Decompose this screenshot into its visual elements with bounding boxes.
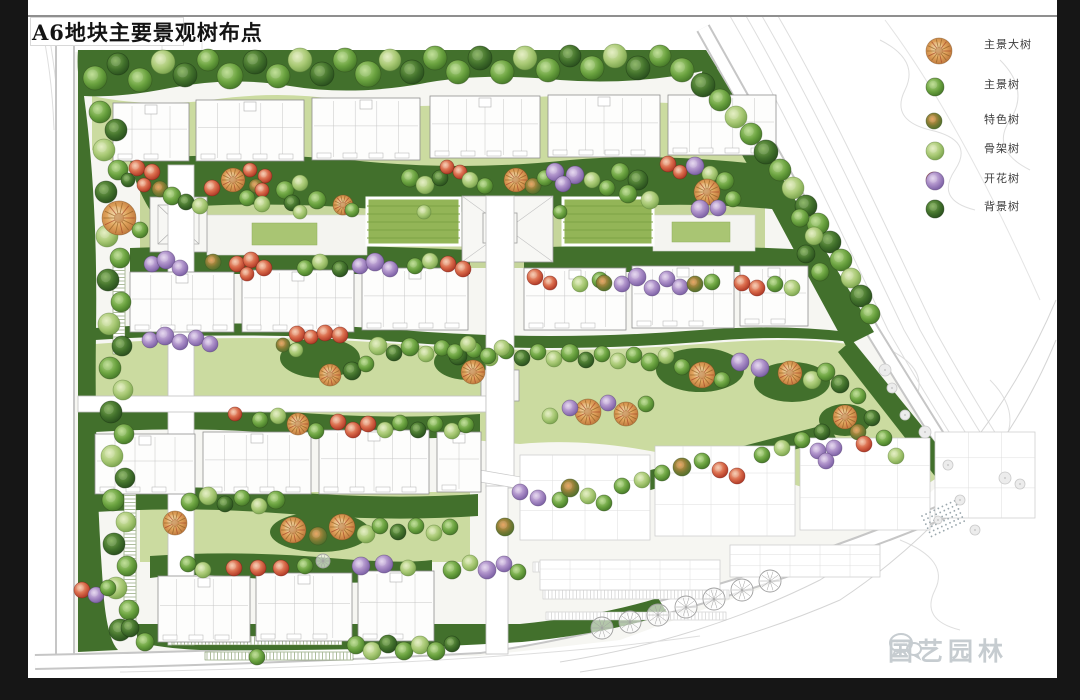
tree-symbol-bg [850,285,872,307]
tree-symbol-bg [831,375,849,393]
tree-symbol-fp [188,330,204,346]
tree-symbol-sk [418,346,434,362]
tree-symbol-mn [926,78,944,96]
tree-symbol-bt [287,413,309,435]
offsite-tree [970,525,980,535]
tree-symbol-mn [442,519,458,535]
tree-symbol-mn [649,45,671,67]
line-tree-symbol [316,554,330,568]
tree-symbol-sp [496,518,514,536]
tree-symbol-bg [103,533,125,555]
tree-symbol-mn [355,61,381,87]
tree-symbol-mn [427,642,445,660]
tree-symbol-mn [725,191,741,207]
tree-symbol-bg [112,336,132,356]
tree-symbol-sk [192,198,208,214]
tree-symbol-bt [778,361,802,385]
offsite-tree [1015,479,1025,489]
legend-tree-swatch-icon [924,111,944,131]
tree-symbol-sk [377,422,393,438]
tree-symbol-mn [114,424,134,444]
tree-symbol-fr [228,407,242,421]
tree-symbol-bt [221,168,245,192]
tree-symbol-bg [332,261,348,277]
legend-item-sk: 骨架树 [924,140,1020,156]
tree-symbol-mn [392,415,408,431]
tree-symbol-bg [864,410,880,426]
legend-label: 主景树 [984,76,1020,92]
tree-symbol-sk [426,525,442,541]
tree-symbol-sk [513,46,537,70]
offsite-tree [879,364,891,376]
tree-symbol-mn [596,495,612,511]
tree-symbol-mn [252,412,268,428]
tree-symbol-fr [304,330,318,344]
tree-symbol-mn [119,600,139,620]
tree-symbol-fp [352,258,368,274]
tree-symbol-fp [818,453,834,469]
tree-symbol-sp [309,527,327,545]
cad-building-outline [730,545,880,577]
legend-label: 开花树 [984,170,1020,186]
line-tree-symbol [703,588,725,610]
legend-item-fr-fp: 开花树 [924,170,1020,186]
tree-symbol-mn [670,58,694,82]
tree-symbol-mn [266,64,290,88]
tree-symbol-bt [102,201,136,235]
tree-symbol-sk [774,440,790,456]
tree-symbol-mn [99,357,121,379]
tree-symbol-sk [292,175,308,191]
tree-symbol-bg [410,422,426,438]
tree-symbol-fr [204,180,220,196]
tree-symbol-sk [926,142,944,160]
tree-symbol-bg [400,60,424,84]
tree-symbol-bg [243,50,267,74]
tree-symbol-bt [504,168,528,192]
tree-symbol-fp [512,484,528,500]
tree-symbol-fr [317,325,333,341]
tree-symbol-fr [74,582,90,598]
tree-symbol-mn [614,478,630,494]
tree-symbol-sk [312,254,328,270]
tree-symbol-mn [530,344,546,360]
tree-symbol-fp [562,400,578,416]
tree-symbol-fr [250,560,266,576]
tree-symbol-mn [553,205,567,219]
legend-label: 骨架树 [984,140,1020,156]
tree-symbol-sk [658,348,674,364]
legend-tree-swatch-icon [924,198,946,220]
building-footprint [203,432,311,494]
parking-hatch-strip [205,652,353,660]
tree-symbol-sk [462,555,478,571]
building-footprint [632,266,734,328]
watermark: 国艺园林 [888,632,1008,668]
tree-symbol-mn [754,447,770,463]
tree-symbol-mn [89,101,111,123]
legend-label: 特色树 [984,111,1020,127]
tree-symbol-sk [101,445,123,467]
left-letterbox [0,0,28,700]
tree-symbol-fp [731,353,749,371]
tree-symbol-bg [814,424,830,440]
tree-symbol-mn [694,453,710,469]
tree-symbol-sk [634,472,650,488]
offsite-tree [919,426,931,438]
tree-symbol-mn [619,185,637,203]
tree-symbol-sk [603,44,627,68]
tree-symbol-sk [725,106,747,128]
tree-symbol-mn [480,348,496,364]
building-footprint [242,270,354,332]
tree-symbol-bg [514,350,530,366]
tree-symbol-sp [687,276,703,292]
tree-symbol-mn [136,633,154,651]
tree-symbol-mn [249,649,265,665]
tree-symbol-fr [543,276,557,290]
line-tree-symbol [675,596,697,618]
right-letterbox [1057,0,1080,700]
tree-symbol-mn [594,346,610,362]
tree-symbol-fp [691,200,709,218]
bottom-letterbox [0,678,1080,700]
cad-building-outline [655,446,795,536]
tree-symbol-sk [195,562,211,578]
tree-symbol-mn [239,190,255,206]
site-plan-drawing [0,0,1080,700]
tree-symbol-mn [408,518,424,534]
tree-symbol-bg [178,194,194,210]
tree-symbol-fr [673,165,687,179]
tree-symbol-mn [654,465,670,481]
tree-symbol-bg [390,524,406,540]
tree-symbol-mn [128,68,152,92]
tree-symbol-sk [580,488,596,504]
tree-symbol-mn [876,430,892,446]
building-footprint [430,96,540,158]
tree-symbol-fr [243,163,257,177]
tree-symbol-mn [638,396,654,412]
legend-tree-swatch-icon [924,76,946,98]
tree-symbol-fp [375,555,393,573]
tree-symbol-mn [510,564,526,580]
offsite-tree [934,516,942,524]
offsite-tree [900,410,910,420]
tree-symbol-bt [926,38,952,64]
tree-symbol-bt [575,399,601,425]
line-tree-symbol [731,579,753,601]
tree-symbol-sk [151,50,175,74]
tree-symbol-fp [352,557,370,575]
tree-symbol-bg [107,53,129,75]
tree-symbol-bt [329,514,355,540]
tree-symbol-fr [440,256,456,272]
tree-symbol-bg [173,63,197,87]
tree-symbol-mn [132,222,148,238]
tree-symbol-sp [926,113,942,129]
tree-symbol-mn [641,353,659,371]
tree-symbol-sk [584,172,600,188]
tree-symbol-fp [156,327,174,345]
tree-symbol-sk [641,191,659,209]
wechat-icon [888,632,922,662]
legend-tree-swatch-icon [924,140,946,162]
tree-symbol-bt [280,517,306,543]
tree-symbol-mn [358,356,374,372]
tree-symbol-bt [689,362,715,388]
tree-symbol-bg [626,56,650,80]
tree-symbol-mn [817,363,835,381]
tree-symbol-fr [144,164,160,180]
tree-symbol-fr [360,416,376,432]
building-footprint [362,268,468,330]
tree-symbol-sk [805,227,823,245]
tree-symbol-fr [527,269,543,285]
tree-symbol-mn [347,636,365,654]
tree-symbol-mn [767,276,783,292]
tree-symbol-mn [297,260,313,276]
tree-symbol-mn [769,159,791,181]
tree-symbol-mn [407,258,423,274]
line-tree-symbol [647,604,669,626]
tree-symbol-sk [400,560,416,576]
page-title: A6地块主要景观树布点 [32,17,263,47]
building-footprint [196,100,304,161]
tree-symbol-mn [791,209,809,227]
tree-symbol-mn [850,388,866,404]
tree-symbol-fr [273,560,289,576]
tree-symbol-mn [197,49,219,71]
tree-symbol-bt [614,402,638,426]
tree-symbol-fr [332,327,348,343]
building-footprint [437,432,481,492]
tree-symbol-bg [100,401,122,423]
tree-symbol-mn [714,372,730,388]
tree-symbol-mn [490,60,514,84]
tree-symbol-mn [611,163,629,181]
tree-symbol-fp [366,253,384,271]
legend-item-bt: 主景大树 [924,36,1032,52]
tree-symbol-fp [530,490,546,506]
legend-label: 背景树 [984,198,1020,214]
tree-symbol-sk [363,642,381,660]
tree-symbol-sk [93,139,115,161]
hedge-panel-east [563,198,653,245]
tree-symbol-sp [276,338,290,352]
legend-item-mn: 主景树 [924,76,1020,92]
tree-symbol-sp [673,458,691,476]
tree-symbol-mn [110,248,130,268]
tree-symbol-mn [297,558,313,574]
tree-symbol-bt [319,364,341,386]
tree-symbol-sk [460,336,476,352]
tree-symbol-sk [610,353,626,369]
building-footprint [312,98,420,160]
tree-symbol-fp [710,200,726,216]
tree-symbol-fr [729,468,745,484]
tree-symbol-sk [199,487,217,505]
tree-symbol-fr [440,160,454,174]
tree-symbol-fp [600,395,616,411]
tree-symbol-mn [477,178,493,194]
tree-symbol-fr [734,275,750,291]
tree-symbol-sk [494,340,510,356]
tree-symbol-mn [267,491,285,509]
tree-symbol-fp [628,268,646,286]
tree-symbol-fr [289,326,305,342]
tree-symbol-fr [345,422,361,438]
tree-symbol-fp [751,359,769,377]
tree-symbol-mn [599,180,615,196]
tree-symbol-fr [455,261,471,277]
tree-symbol-fp [686,157,704,175]
tree-symbol-mn [217,63,243,89]
tree-symbol-mn [458,417,474,433]
line-tree-symbol [591,617,613,639]
tree-symbol-mn [740,123,762,145]
legend-tree-swatch-icon [924,170,946,192]
tree-symbol-sk [782,177,804,199]
tree-symbol-sk [572,276,588,292]
tree-symbol-mn [181,493,199,511]
tree-symbol-sk [422,253,438,269]
building-footprint [319,430,429,494]
tree-symbol-sk [411,636,429,654]
tree-symbol-mn [811,263,829,281]
tree-symbol-sk [113,380,133,400]
tree-symbol-mn [704,274,720,290]
tree-symbol-mn [117,556,137,576]
tree-symbol-bg [468,46,492,70]
tree-symbol-bg [310,62,334,86]
tree-symbol-mn [674,359,690,375]
hedge-panel-west [367,198,460,245]
offsite-tree [887,383,897,393]
tree-symbol-bt [163,511,187,535]
tree-symbol-fr [856,436,872,452]
tree-symbol-mn [100,580,116,596]
line-tree-symbol [759,570,781,592]
tree-symbol-mn [234,490,250,506]
tree-symbol-bg [926,200,944,218]
tree-symbol-sk [444,423,460,439]
tree-symbol-fp [142,332,158,348]
cad-building-outline [935,432,1035,518]
tree-symbol-fp [478,561,496,579]
tree-symbol-mn [180,556,196,572]
tree-symbol-sk [289,343,303,357]
tree-symbol-mn [395,642,413,660]
tree-symbol-mn [830,249,852,271]
tree-symbol-sp [205,254,221,270]
tree-symbol-bg [217,496,233,512]
tree-symbol-fr [712,462,728,478]
tree-symbol-bg [95,181,117,203]
tree-symbol-mn [446,60,470,84]
tree-symbol-mn [427,416,443,432]
tree-symbol-bg [559,45,581,67]
building-footprint [158,576,250,642]
tree-symbol-sk [379,49,401,71]
tree-symbol-fp [382,261,398,277]
offsite-tree [943,460,953,470]
tree-symbol-fr [749,280,765,296]
tree-symbol-mn [580,56,604,80]
tree-symbol-mn [308,423,324,439]
tree-symbol-mn [345,203,359,217]
tree-symbol-mn [561,344,579,362]
tree-symbol-sk [369,337,387,355]
tree-symbol-fp [555,176,571,192]
tree-symbol-sk [251,498,267,514]
tree-symbol-sk [784,280,800,296]
tree-symbol-sk [542,408,558,424]
tree-symbol-sp [561,479,579,497]
cad-building-outline [540,560,720,590]
building-footprint [548,95,660,157]
tree-symbol-bg [97,269,119,291]
tree-symbol-fp [672,279,688,295]
tree-symbol-mn [443,561,461,579]
tree-symbol-fr [330,414,346,430]
tree-symbol-sk [888,448,904,464]
tree-symbol-fr [240,267,254,281]
tree-symbol-bg [386,345,402,361]
legend-item-sp: 特色树 [924,111,1020,127]
tree-symbol-mn [333,48,357,72]
tree-symbol-mn [308,191,326,209]
tree-symbol-mn [860,304,880,324]
tree-symbol-fp [202,336,218,352]
tree-symbol-sk [254,196,270,212]
tree-symbol-mn [626,347,642,363]
tree-symbol-fp [172,334,188,350]
tree-symbol-mn [536,58,560,82]
tree-symbol-bg [797,245,815,263]
tree-symbol-fp [614,276,630,292]
line-tree-symbol [619,611,641,633]
tree-symbol-sk [288,48,312,72]
tree-symbol-fr [137,178,151,192]
building-footprint [740,266,808,326]
tree-symbol-fp [496,556,512,572]
tree-symbol-mn [83,66,107,90]
tree-symbol-sk [116,512,136,532]
tree-symbol-mn [372,518,388,534]
tree-symbol-sk [546,351,562,367]
tree-symbol-fp [644,280,660,296]
tree-symbol-sk [416,176,434,194]
tree-symbol-bg [115,468,135,488]
tree-symbol-bg [121,173,135,187]
tree-symbol-bg [121,619,139,637]
tree-symbol-mn [111,292,131,312]
legend-label: 主景大树 [984,36,1032,52]
tree-symbol-fr [255,183,269,197]
building-footprint [358,571,434,641]
tree-symbol-sp [596,275,612,291]
tree-symbol-sk [841,268,861,288]
tree-symbol-sk [270,408,286,424]
offsite-tree [955,495,965,505]
tree-symbol-bg [105,119,127,141]
cad-buildings-layer [520,432,1035,590]
parking-hatch-strip [543,590,729,599]
landscape-plan-page: A6地块主要景观树布点 主景大树主景树特色树骨架树开花树背景树 国艺园林 [0,0,1080,700]
tree-symbol-bg [444,636,460,652]
offsite-tree [999,472,1011,484]
